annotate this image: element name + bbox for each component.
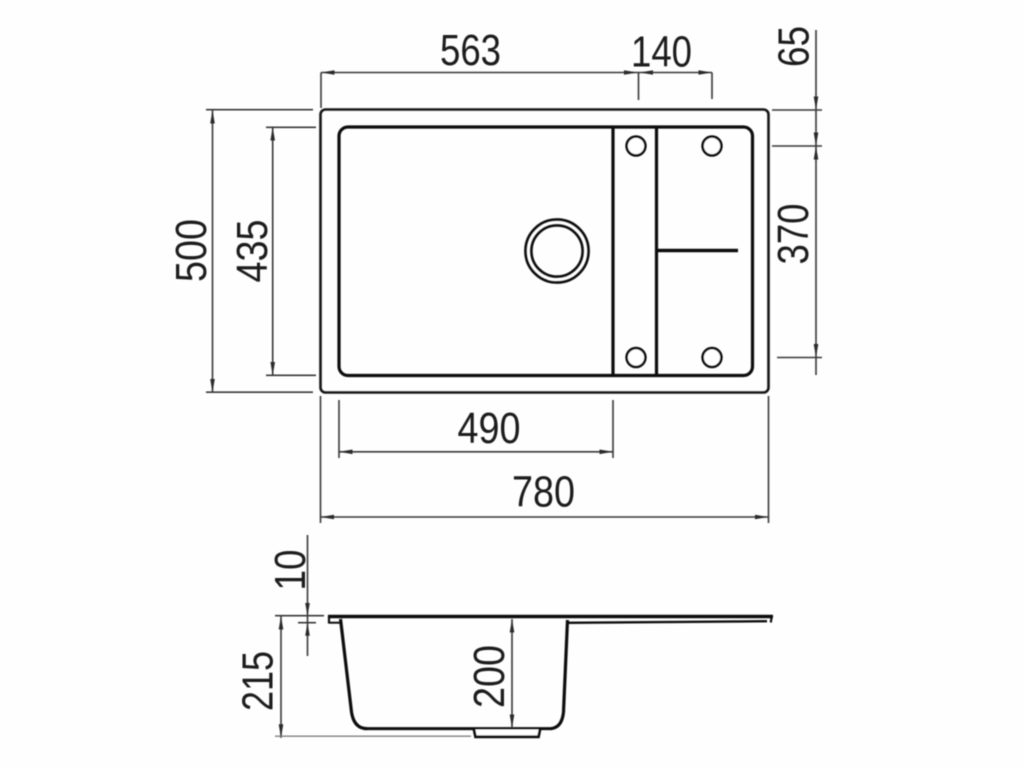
svg-text:490: 490 [458,404,521,453]
svg-text:10: 10 [266,550,315,591]
svg-text:563: 563 [440,26,501,75]
svg-text:435: 435 [228,220,277,283]
svg-text:370: 370 [769,204,818,265]
svg-text:780: 780 [512,468,575,517]
svg-text:65: 65 [770,26,819,67]
svg-text:500: 500 [167,219,216,282]
svg-text:140: 140 [631,28,692,77]
svg-text:215: 215 [234,651,283,711]
svg-text:200: 200 [465,645,514,708]
